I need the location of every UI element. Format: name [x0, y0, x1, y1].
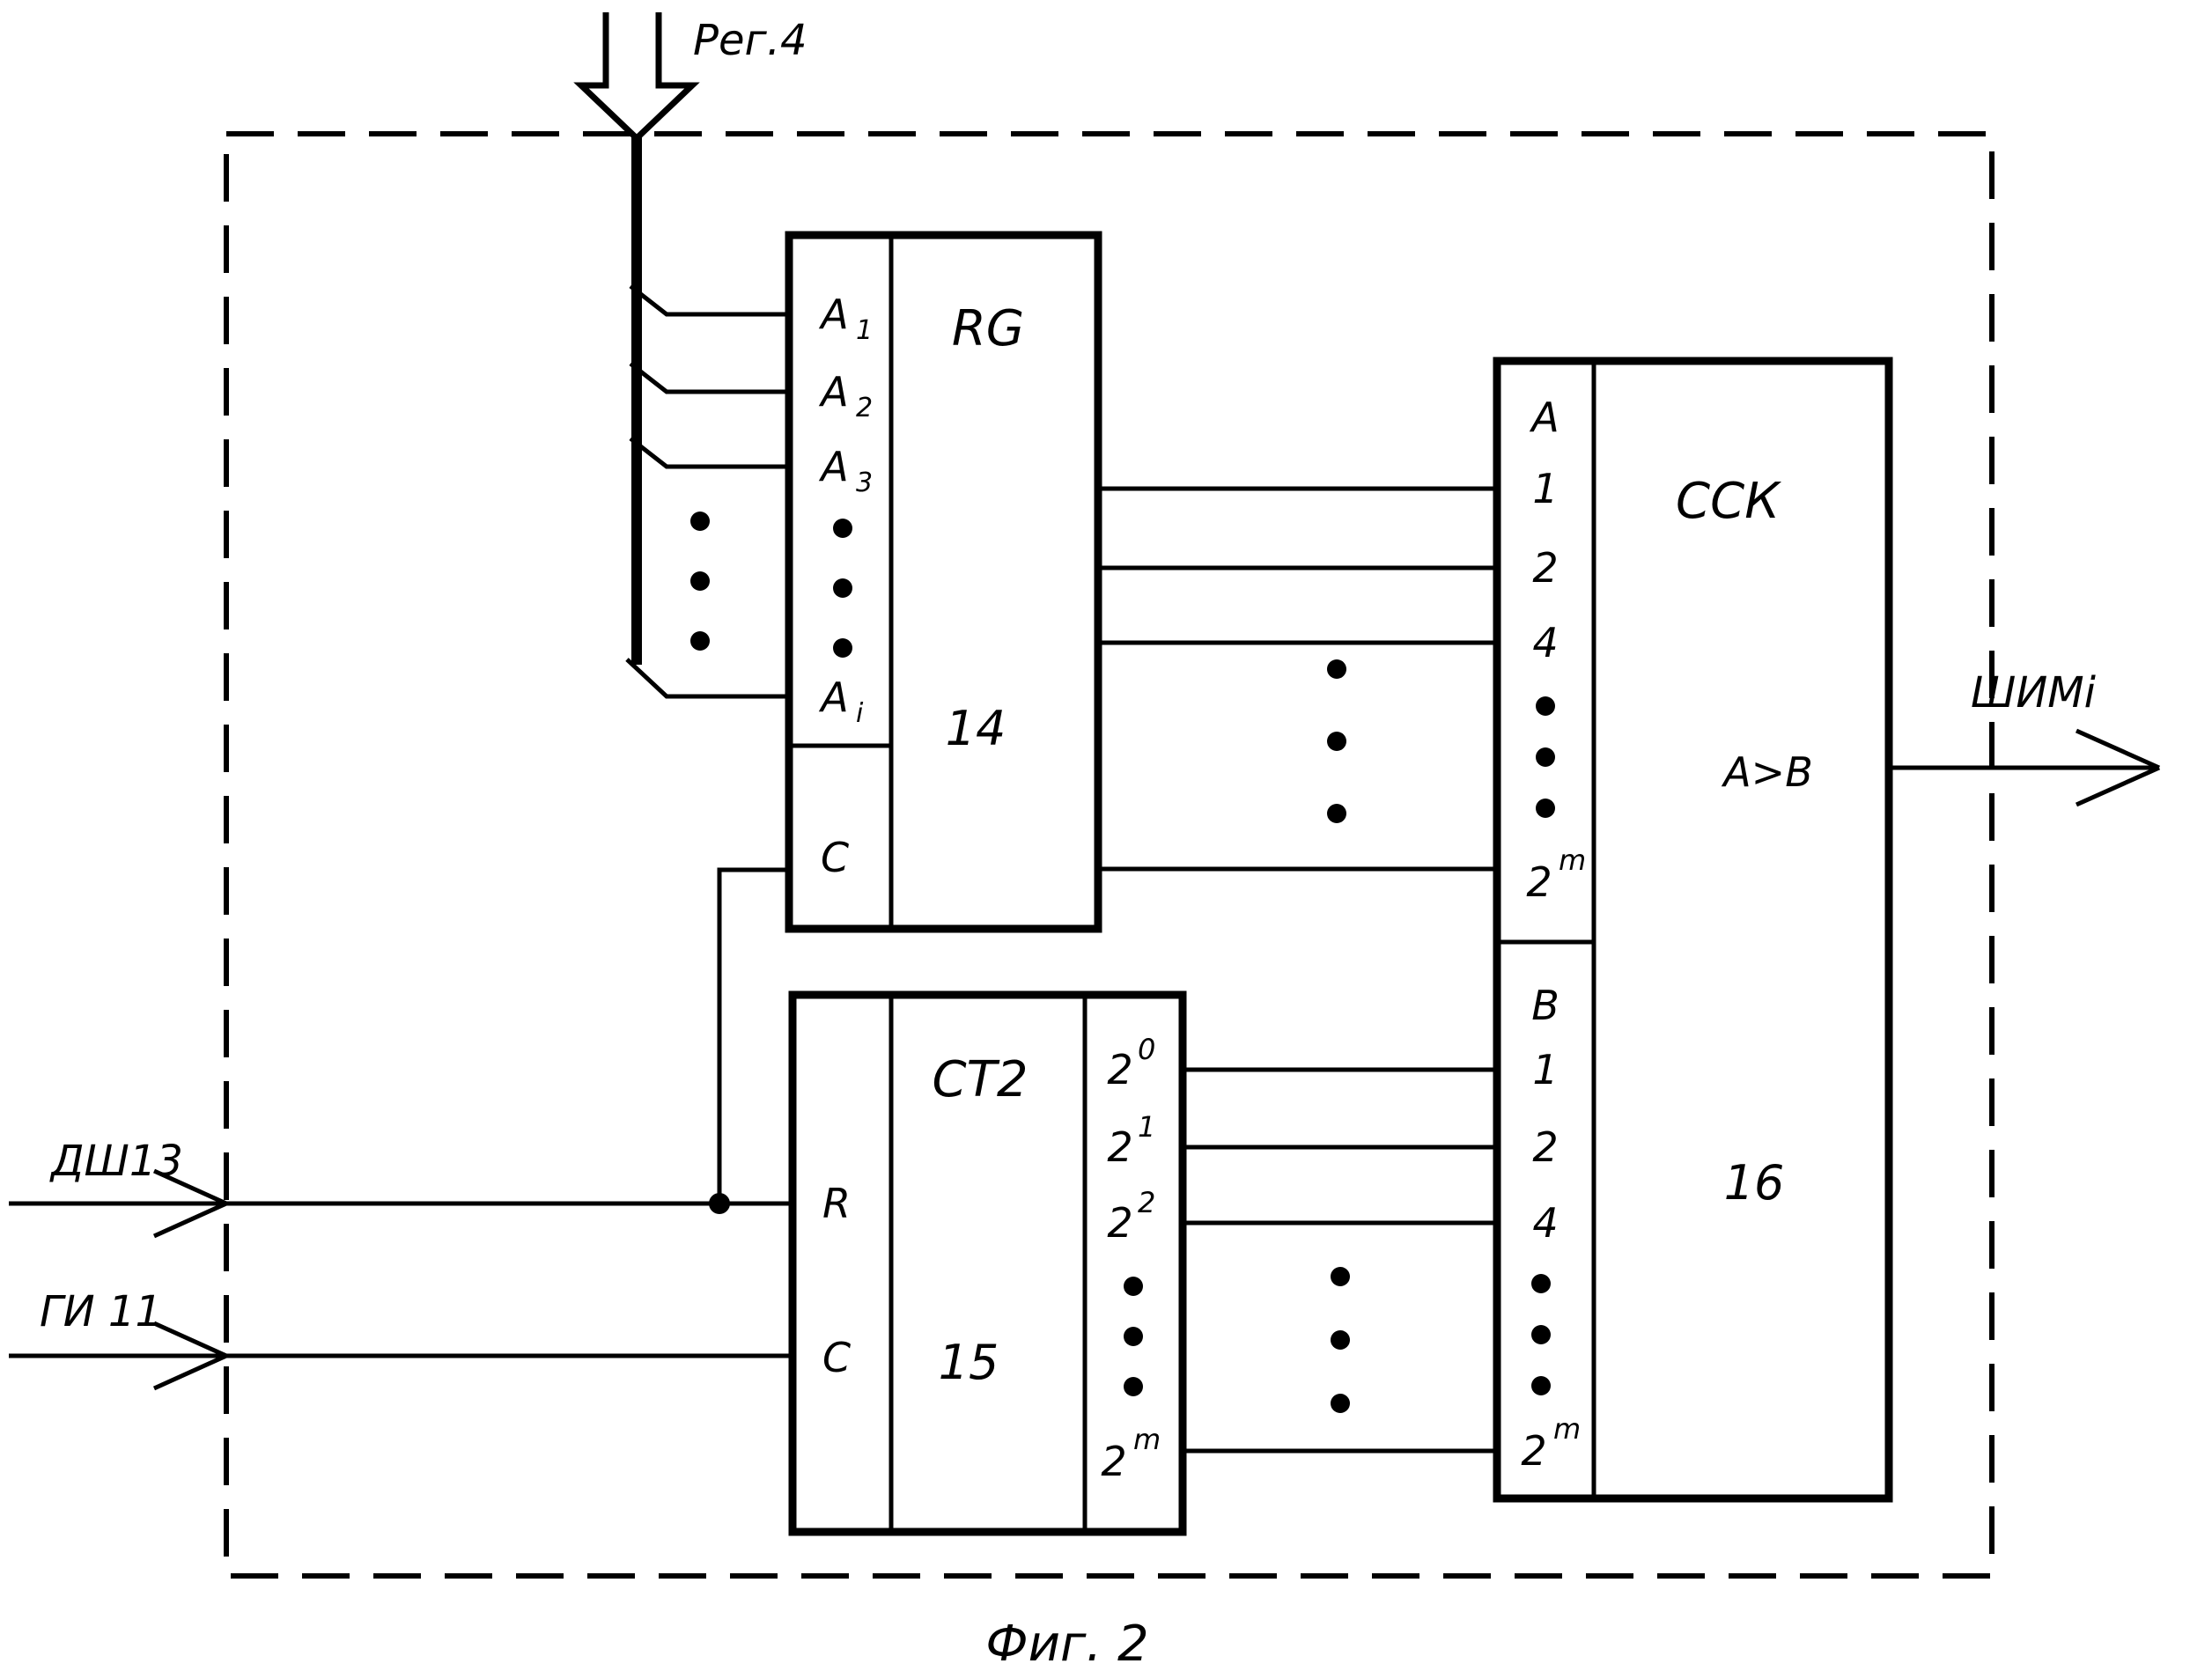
- svg-text:2: 2: [1107, 1046, 1132, 1093]
- figure-caption: Фиг. 2: [985, 1616, 1148, 1671]
- rg-pin-a2: A 2: [818, 368, 873, 423]
- svg-text:1: 1: [1138, 1110, 1155, 1144]
- cck-b-header: B: [1531, 982, 1559, 1029]
- cck-b-row-2pm: 2 m: [1521, 1412, 1581, 1475]
- cck-number: 16: [1724, 1155, 1785, 1211]
- rg-to-cck-wires: [1098, 489, 1497, 869]
- ct2-type-label: CT2: [933, 1051, 1029, 1108]
- ct2-pin-2p1: 2 1: [1107, 1110, 1155, 1171]
- cck-b-row-1: 1: [1532, 1046, 1558, 1093]
- circuit-diagram: Рег.4 RG 14 A 1 A 2 A 3: [0, 0, 2212, 1671]
- svg-text:2: 2: [1138, 1186, 1155, 1219]
- cck-a-header: A: [1529, 394, 1559, 441]
- ct2-number: 15: [939, 1335, 999, 1390]
- svg-text:0: 0: [1138, 1033, 1155, 1066]
- svg-text:2: 2: [1526, 858, 1552, 906]
- rg-type-label: RG: [952, 300, 1024, 357]
- cck-a-row-2pm: 2 m: [1526, 843, 1586, 906]
- svg-text:A: A: [818, 674, 848, 721]
- top-bus-arrow-icon: [581, 12, 692, 138]
- cck-a-row-2: 2: [1532, 544, 1558, 592]
- ct2-cck-ellipsis-dots: [1331, 1267, 1350, 1413]
- cck-b-ellipsis-dots: [1531, 1274, 1551, 1395]
- ct2-ellipsis-dots: [1124, 1277, 1143, 1396]
- rg-pin-ai: A i: [818, 674, 864, 729]
- patent-figure-page: Рег.4 RG 14 A 1 A 2 A 3: [0, 0, 2212, 1671]
- output-wire: [1889, 731, 2159, 805]
- cck-compare-label: A>B: [1721, 748, 1813, 796]
- ct2-pin-r: R: [822, 1180, 851, 1227]
- svg-text:m: m: [1133, 1423, 1161, 1456]
- output-label: ШИМi: [1971, 668, 2097, 718]
- block-ct2: CT2 15 R C 2 0 2 1 2 2 2 m: [793, 995, 1183, 1532]
- cck-b-row-2: 2: [1532, 1123, 1558, 1171]
- svg-text:1: 1: [856, 315, 873, 346]
- ct2-pin-2p2: 2 2: [1107, 1186, 1155, 1247]
- rg-input-wires: [627, 286, 789, 696]
- ct2-pin-c: C: [822, 1334, 851, 1381]
- svg-text:2: 2: [856, 393, 873, 423]
- svg-text:2: 2: [1107, 1199, 1132, 1247]
- input-gi11-label: ГИ 11: [40, 1287, 162, 1336]
- svg-text:m: m: [1559, 843, 1586, 877]
- rg-cck-ellipsis-dots: [1327, 659, 1346, 823]
- rg-pin-a3: A 3: [818, 443, 873, 498]
- block-rg: RG 14 A 1 A 2 A 3 A i C: [789, 235, 1098, 929]
- svg-text:2: 2: [1101, 1438, 1126, 1485]
- rg-pin-a1: A 1: [818, 291, 873, 346]
- svg-text:2: 2: [1107, 1123, 1132, 1171]
- rg-pin-c: C: [821, 834, 849, 881]
- svg-text:A: A: [818, 291, 848, 338]
- svg-text:i: i: [856, 698, 864, 729]
- cck-a-row-1: 1: [1532, 465, 1558, 512]
- input-dsh13-label: ДШ13: [49, 1137, 183, 1186]
- svg-text:2: 2: [1521, 1427, 1546, 1475]
- svg-text:A: A: [818, 368, 848, 416]
- cck-a-ellipsis-dots: [1536, 696, 1555, 818]
- bus-ellipsis-dots: [690, 512, 710, 651]
- block-cck: ССК 16 A>B A 1 2 4 2 m B 1 2 4 2 m: [1497, 361, 1889, 1498]
- cck-type-label: ССК: [1676, 473, 1781, 530]
- rg-ellipsis-dots: [833, 519, 852, 658]
- svg-text:m: m: [1553, 1412, 1581, 1446]
- rg-number: 14: [946, 701, 1006, 756]
- dashed-boundary: [226, 134, 1992, 1576]
- ct2-pin-2pm: 2 m: [1101, 1423, 1161, 1485]
- top-bus-label: Рег.4: [693, 16, 807, 65]
- cck-a-row-4: 4: [1532, 619, 1558, 666]
- svg-text:3: 3: [856, 467, 873, 498]
- svg-text:A: A: [818, 443, 848, 490]
- cck-b-row-4: 4: [1532, 1199, 1558, 1247]
- ct2-pin-2p0: 2 0: [1107, 1033, 1155, 1093]
